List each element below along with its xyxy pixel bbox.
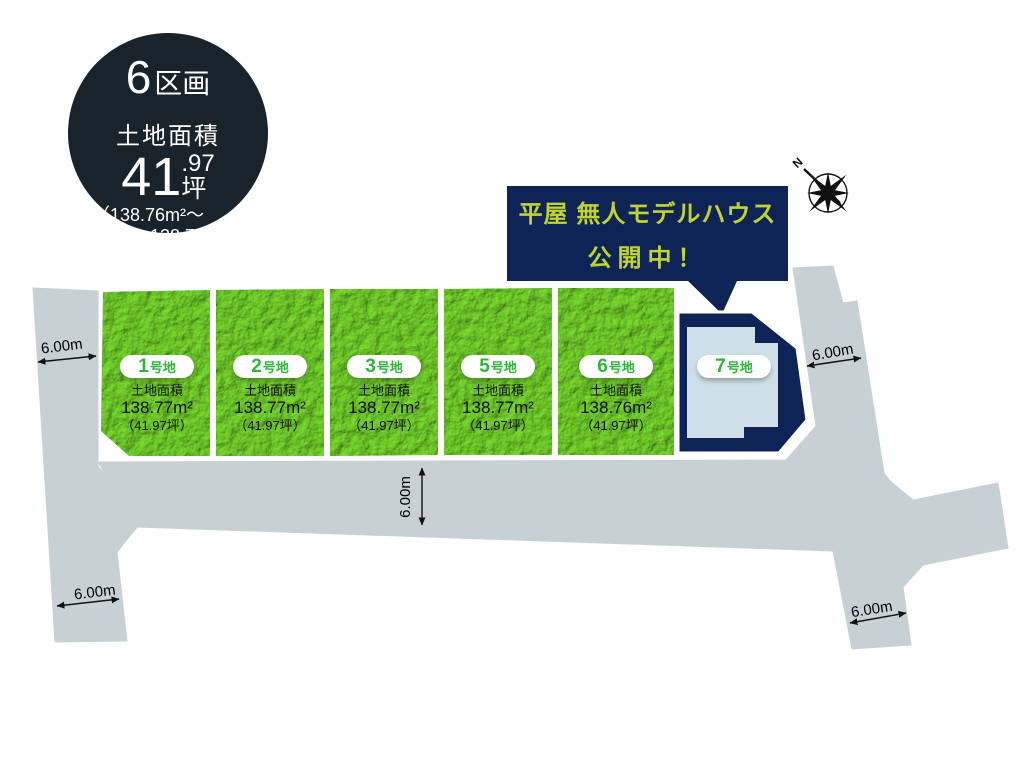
plot-label-3: 3号地 土地面積 138.77m² （41.97坪） xyxy=(328,355,440,434)
plot-number-badge: 7号地 xyxy=(697,355,771,378)
plot-label-5: 5号地 土地面積 138.77m² （41.97坪） xyxy=(442,355,554,434)
compass-north-label: N xyxy=(790,155,806,171)
compass-rose: N xyxy=(790,155,849,214)
plot-number-badge: 3号地 xyxy=(347,355,421,378)
callout-tail xyxy=(688,281,737,314)
plot-number-badge: 5号地 xyxy=(461,355,535,378)
road-southeast-branch xyxy=(816,426,1008,649)
plot-label-2: 2号地 土地面積 138.77m² （41.97坪） xyxy=(214,355,326,434)
plot-label-1: 1号地 土地面積 138.77m² （41.97坪） xyxy=(101,355,213,434)
plot-label-7: 7号地 xyxy=(678,355,790,383)
area-range: （138.76m²〜 138.77m²） xyxy=(92,205,244,247)
plot-number-badge: 6号地 xyxy=(579,355,653,378)
tsubo-area: 41 .97 坪 xyxy=(121,151,214,203)
plot-count: 6区画 xyxy=(126,54,211,112)
model-house-callout: 平屋 無人モデルハウス 公開中！ xyxy=(507,186,788,281)
road-width-label-south-center: 6.00m xyxy=(398,476,414,518)
plot-number-badge: 1号地 xyxy=(120,355,194,378)
plot-label-6: 6号地 土地面積 138.76m² （41.97坪） xyxy=(560,355,672,434)
summary-badge: 6区画 土地面積 41 .97 坪 （138.76m²〜 138.77m²） xyxy=(68,33,268,233)
site-plan: N 6区画 土地面積 41 .97 坪 （138.76m²〜 138.77m²）… xyxy=(0,0,1026,781)
plot-number-badge: 2号地 xyxy=(233,355,307,378)
